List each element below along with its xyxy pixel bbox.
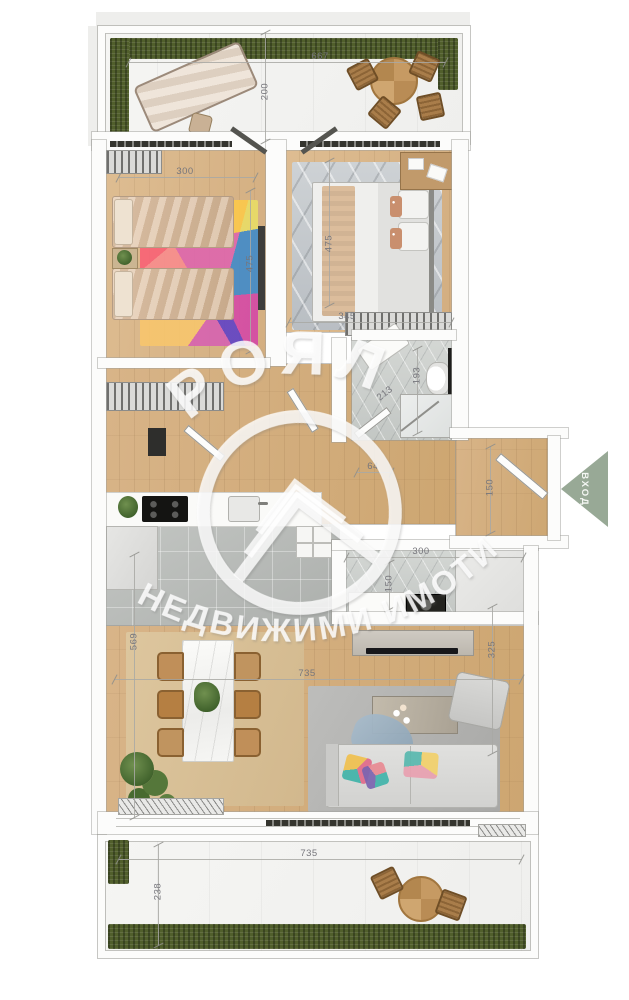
dim-label-terrace-bottom-width: 735 [292, 848, 326, 859]
wall [98, 358, 270, 368]
sliding-door-track [110, 141, 232, 147]
grass-strip-top-left [110, 38, 129, 134]
hall-wardrobe [106, 382, 224, 411]
cooktop [142, 496, 188, 522]
grass-strip-top [110, 38, 458, 59]
pillow [398, 190, 429, 219]
entrance-arrow: ВХОД [561, 451, 608, 527]
tv [366, 648, 458, 654]
wall [92, 140, 106, 834]
dim-label-bedroom2-width: 345 [330, 311, 364, 322]
wall [452, 140, 468, 440]
wall [332, 338, 346, 442]
pillow [398, 222, 429, 251]
kitchen-sink [228, 496, 260, 522]
window-line [116, 826, 520, 827]
wall [548, 436, 560, 540]
dining-chair [234, 652, 261, 681]
shower [400, 394, 454, 438]
faucet [258, 502, 268, 505]
plant-pot [117, 250, 132, 265]
dining-chair [234, 690, 261, 719]
dim-label-bedroom1-depth: 475 [245, 247, 256, 281]
tv-bedroom-1 [258, 226, 265, 310]
sliding-door-track [266, 820, 470, 826]
dim-label-entry-depth: 150 [485, 471, 496, 505]
wall [332, 540, 346, 620]
dim-label-bathroom-depth: 193 [412, 359, 423, 393]
grass-patch-bottom-left [108, 840, 129, 884]
wall [352, 330, 456, 340]
radiator [478, 824, 526, 837]
slab-left [88, 26, 98, 146]
pillow [114, 271, 133, 317]
sofa-pillow [403, 751, 439, 779]
kitchen-island [296, 526, 332, 558]
papers [408, 158, 424, 170]
dim-label-laundry-depth: 150 [384, 567, 395, 601]
grass-strip-bottom [108, 924, 526, 949]
dim-label-living-depth: 569 [129, 625, 140, 659]
outdoor-table-bottom [398, 876, 444, 922]
headboard [429, 186, 434, 316]
dining-chair [157, 728, 184, 757]
dim-label-bedroom2-depth: 475 [324, 227, 335, 261]
floor-plant [120, 752, 154, 786]
wall [524, 546, 538, 832]
dining-chair [157, 652, 184, 681]
window-line [116, 818, 520, 819]
outdoor-chair [416, 92, 446, 122]
dim-label-terrace-bottom-depth: 238 [153, 875, 164, 909]
grass-strip-top-right [438, 38, 458, 90]
sofa-armrest [326, 744, 339, 806]
toilet [426, 362, 449, 395]
dim-label-terrace-top-width: 667 [303, 51, 337, 62]
dim-label-terrace-top-depth: 200 [260, 75, 271, 109]
accent-pillow [390, 196, 402, 217]
entrance-label: ВХОД [579, 472, 590, 507]
wall [332, 612, 538, 624]
dim-label-living-right-depth: 325 [487, 633, 498, 667]
kitchen-plant [118, 496, 138, 518]
dim-label-laundry-width: 300 [404, 546, 438, 557]
dim-label-living-width: 735 [290, 668, 324, 679]
floor-plan: 667 200 300 475 475 345 [0, 0, 629, 1000]
dining-chair [234, 728, 261, 757]
wall [266, 140, 286, 366]
pillow [114, 199, 133, 245]
oven-column [148, 428, 166, 456]
dim-label-bedroom1-width: 300 [168, 166, 202, 177]
table-centerpiece [194, 682, 220, 712]
tall-cabinet [106, 526, 158, 590]
wardrobe-bedroom-1 [106, 150, 162, 174]
dim-label-hall-width: 64 [356, 461, 390, 472]
accent-pillow [390, 228, 402, 249]
dining-chair [157, 690, 184, 719]
